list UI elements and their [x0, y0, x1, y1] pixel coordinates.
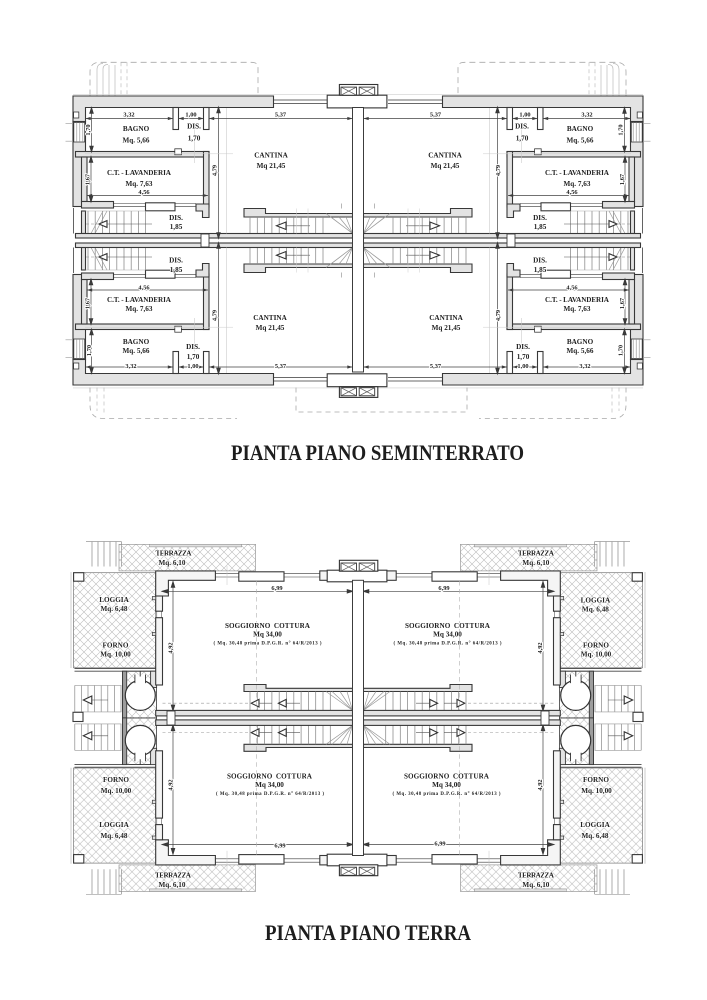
- svg-text:DIS.: DIS.: [169, 214, 183, 222]
- svg-text:1,85: 1,85: [170, 266, 183, 274]
- svg-text:DIS.: DIS.: [515, 123, 529, 131]
- svg-text:TERRAZZA: TERRAZZA: [518, 550, 555, 558]
- svg-text:1,67: 1,67: [619, 297, 626, 309]
- svg-text:LOGGIA: LOGGIA: [99, 821, 129, 829]
- svg-text:5,37: 5,37: [430, 112, 442, 119]
- svg-text:4,56: 4,56: [566, 285, 578, 292]
- svg-text:1,67: 1,67: [619, 173, 626, 185]
- svg-text:1,70: 1,70: [618, 124, 625, 135]
- svg-text:FORNO: FORNO: [103, 776, 129, 784]
- svg-text:1,00: 1,00: [519, 112, 530, 119]
- svg-text:1,70: 1,70: [517, 353, 530, 361]
- svg-text:TERRAZZA: TERRAZZA: [518, 872, 555, 880]
- svg-text:Mq. 7,63: Mq. 7,63: [564, 180, 591, 188]
- svg-text:C.T. - LAVANDERIA: C.T. - LAVANDERIA: [107, 296, 172, 304]
- svg-text:1,67: 1,67: [85, 297, 92, 309]
- svg-text:Mq. 6,48: Mq. 6,48: [101, 605, 128, 613]
- svg-text:C.T. - LAVANDERIA: C.T. - LAVANDERIA: [545, 169, 610, 177]
- svg-text:Mq. 10,00: Mq. 10,00: [581, 651, 612, 659]
- svg-text:SOGGIORNO COTTURA: SOGGIORNO COTTURA: [227, 773, 313, 781]
- svg-text:BAGNO: BAGNO: [567, 125, 594, 133]
- svg-text:5,37: 5,37: [275, 112, 287, 119]
- svg-text:PIANTA PIANO SEMINTERRATO: PIANTA PIANO SEMINTERRATO: [231, 440, 524, 465]
- svg-text:Mq. 5,66: Mq. 5,66: [567, 137, 594, 145]
- svg-text:4,56: 4,56: [138, 285, 150, 292]
- svg-text:Mq 34,00: Mq 34,00: [255, 781, 284, 789]
- svg-text:CANTINA: CANTINA: [428, 152, 462, 160]
- svg-text:Mq. 10,00: Mq. 10,00: [101, 787, 132, 795]
- svg-text:CANTINA: CANTINA: [429, 314, 463, 322]
- svg-text:1,85: 1,85: [534, 223, 547, 231]
- svg-text:( Mq. 30,48 prima D.P.G.R. n°: ( Mq. 30,48 prima D.P.G.R. n° 64/R/2013 …: [214, 642, 322, 647]
- svg-text:4,92: 4,92: [537, 779, 544, 790]
- svg-text:5,37: 5,37: [275, 363, 287, 370]
- svg-text:3,32: 3,32: [581, 112, 592, 119]
- svg-text:C.T. - LAVANDERIA: C.T. - LAVANDERIA: [107, 169, 172, 177]
- svg-text:Mq 34,00: Mq 34,00: [253, 630, 282, 638]
- svg-text:4,56: 4,56: [138, 189, 150, 196]
- svg-text:FORNO: FORNO: [583, 642, 609, 650]
- svg-text:6,99: 6,99: [274, 843, 285, 850]
- svg-text:CANTINA: CANTINA: [253, 314, 287, 322]
- svg-text:1,67: 1,67: [85, 173, 92, 185]
- svg-text:4,56: 4,56: [566, 189, 578, 196]
- svg-text:LOGGIA: LOGGIA: [99, 596, 129, 604]
- svg-text:1,85: 1,85: [170, 223, 183, 231]
- svg-text:Mq. 7,63: Mq. 7,63: [564, 305, 591, 313]
- svg-text:DIS.: DIS.: [533, 257, 547, 265]
- svg-text:BAGNO: BAGNO: [123, 338, 150, 346]
- svg-text:Mq. 5,66: Mq. 5,66: [123, 347, 150, 355]
- svg-text:DIS.: DIS.: [187, 123, 201, 131]
- svg-text:Mq 21,45: Mq 21,45: [432, 324, 461, 332]
- svg-text:3,32: 3,32: [579, 363, 590, 370]
- svg-text:6,99: 6,99: [271, 585, 282, 592]
- svg-text:LOGGIA: LOGGIA: [581, 597, 611, 605]
- svg-text:Mq. 7,63: Mq. 7,63: [126, 180, 153, 188]
- svg-text:Mq 21,45: Mq 21,45: [431, 162, 460, 170]
- svg-text:C.T. - LAVANDERIA: C.T. - LAVANDERIA: [545, 296, 610, 304]
- svg-text:CANTINA: CANTINA: [254, 152, 288, 160]
- svg-text:( Mq. 30,48 prima D.P.G.R. n°: ( Mq. 30,48 prima D.P.G.R. n° 64/R/2013 …: [394, 642, 502, 647]
- svg-text:4,79: 4,79: [495, 310, 502, 321]
- svg-text:LOGGIA: LOGGIA: [580, 821, 610, 829]
- svg-text:Mq. 6,48: Mq. 6,48: [582, 832, 609, 840]
- svg-text:1,70: 1,70: [188, 135, 201, 143]
- svg-text:4,92: 4,92: [537, 642, 544, 653]
- svg-text:BAGNO: BAGNO: [567, 338, 594, 346]
- svg-text:6,99: 6,99: [434, 841, 445, 848]
- svg-text:1,00: 1,00: [517, 363, 528, 370]
- svg-text:Mq. 6,48: Mq. 6,48: [101, 832, 128, 840]
- svg-text:Mq 34,00: Mq 34,00: [432, 781, 461, 789]
- svg-text:Mq. 6,10: Mq. 6,10: [522, 881, 549, 889]
- svg-text:Mq 34,00: Mq 34,00: [433, 630, 462, 638]
- svg-text:1,70: 1,70: [86, 345, 93, 356]
- svg-text:4,79: 4,79: [495, 165, 502, 176]
- svg-text:Mq. 10,00: Mq. 10,00: [581, 787, 612, 795]
- svg-text:BAGNO: BAGNO: [123, 125, 150, 133]
- svg-text:Mq. 7,63: Mq. 7,63: [126, 305, 153, 313]
- svg-text:FORNO: FORNO: [583, 776, 609, 784]
- svg-text:3,32: 3,32: [123, 112, 134, 119]
- svg-text:1,00: 1,00: [187, 363, 198, 370]
- svg-text:Mq. 10,00: Mq. 10,00: [100, 651, 131, 659]
- svg-text:SOGGIORNO COTTURA: SOGGIORNO COTTURA: [405, 622, 491, 630]
- svg-text:FORNO: FORNO: [103, 642, 129, 650]
- svg-text:4,79: 4,79: [212, 310, 219, 321]
- svg-text:DIS.: DIS.: [169, 257, 183, 265]
- svg-text:1,70: 1,70: [85, 124, 92, 135]
- svg-text:Mq. 6,48: Mq. 6,48: [582, 606, 609, 614]
- svg-text:DIS.: DIS.: [516, 343, 530, 351]
- svg-text:Mq. 5,66: Mq. 5,66: [123, 137, 150, 145]
- svg-text:Mq. 6,10: Mq. 6,10: [159, 559, 186, 567]
- svg-text:SOGGIORNO COTTURA: SOGGIORNO COTTURA: [404, 773, 490, 781]
- svg-text:Mq 21,45: Mq 21,45: [257, 162, 286, 170]
- svg-text:3,32: 3,32: [125, 363, 136, 370]
- svg-text:PIANTA PIANO TERRA: PIANTA PIANO TERRA: [265, 920, 471, 945]
- svg-text:DIS.: DIS.: [533, 214, 547, 222]
- svg-text:Mq 21,45: Mq 21,45: [256, 324, 285, 332]
- svg-text:4,92: 4,92: [168, 642, 175, 653]
- svg-text:Mq. 6,10: Mq. 6,10: [159, 881, 186, 889]
- svg-text:TERRAZZA: TERRAZZA: [156, 550, 193, 558]
- svg-text:5,37: 5,37: [430, 363, 442, 370]
- svg-text:6,99: 6,99: [438, 585, 449, 592]
- svg-text:1,85: 1,85: [534, 266, 547, 274]
- svg-text:4,92: 4,92: [168, 779, 175, 790]
- svg-text:TERRAZZA: TERRAZZA: [155, 872, 192, 880]
- svg-text:SOGGIORNO COTTURA: SOGGIORNO COTTURA: [225, 622, 311, 630]
- svg-text:4,79: 4,79: [212, 165, 219, 176]
- svg-text:1,00: 1,00: [185, 112, 196, 119]
- svg-text:Mq. 6,10: Mq. 6,10: [522, 559, 549, 567]
- svg-text:1,70: 1,70: [516, 135, 529, 143]
- svg-text:1,70: 1,70: [618, 345, 625, 356]
- svg-text:1,70: 1,70: [187, 353, 200, 361]
- svg-text:Mq. 5,66: Mq. 5,66: [567, 347, 594, 355]
- svg-text:( Mq. 30,48 prima D.P.G.R. n°: ( Mq. 30,48 prima D.P.G.R. n° 64/R/2013 …: [216, 792, 324, 797]
- svg-text:DIS.: DIS.: [186, 343, 200, 351]
- svg-text:( Mq. 30,48 prima D.P.G.R. n°: ( Mq. 30,48 prima D.P.G.R. n° 64/R/2013 …: [393, 792, 501, 797]
